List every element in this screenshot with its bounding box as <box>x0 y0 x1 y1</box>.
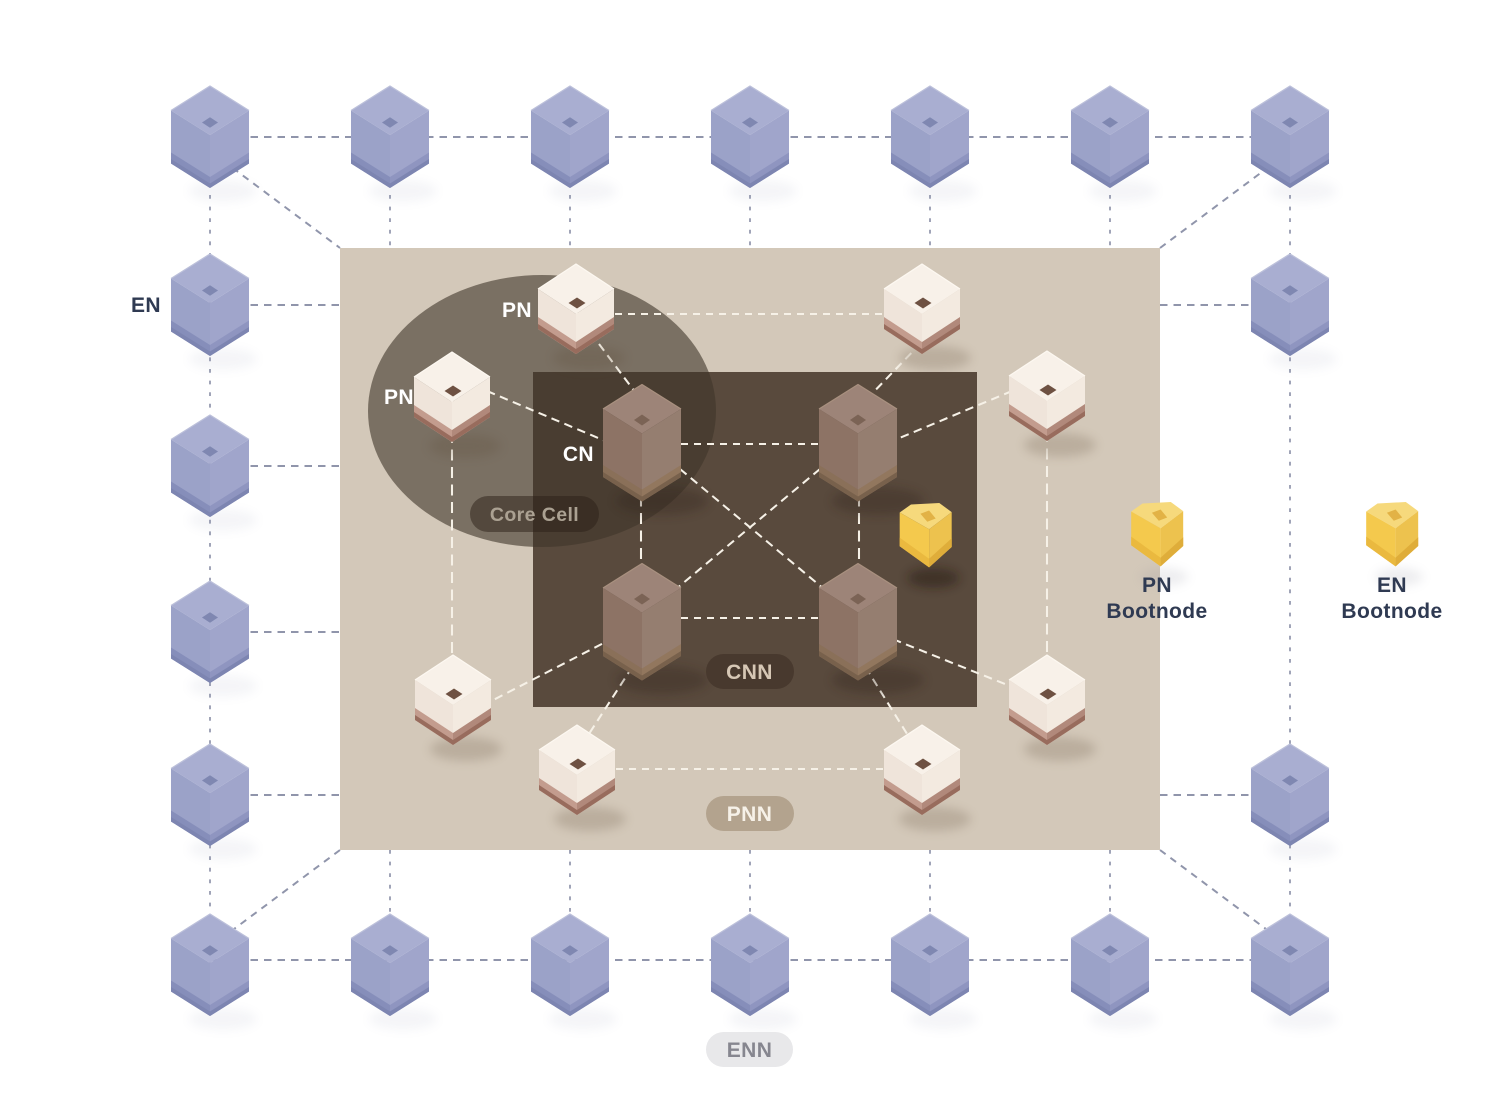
svg-text:CNN: CNN <box>726 661 773 684</box>
svg-text:ENN: ENN <box>727 1039 773 1062</box>
svg-text:PN: PN <box>384 386 414 409</box>
svg-text:Bootnode: Bootnode <box>1341 600 1442 623</box>
svg-text:Core Cell: Core Cell <box>490 504 579 526</box>
svg-text:PN: PN <box>1142 574 1172 597</box>
svg-text:Bootnode: Bootnode <box>1106 600 1207 623</box>
svg-text:CN: CN <box>563 443 594 466</box>
svg-text:PN: PN <box>502 299 532 322</box>
svg-text:EN: EN <box>1377 574 1407 597</box>
svg-text:PNN: PNN <box>727 803 773 826</box>
svg-text:EN: EN <box>131 294 161 317</box>
